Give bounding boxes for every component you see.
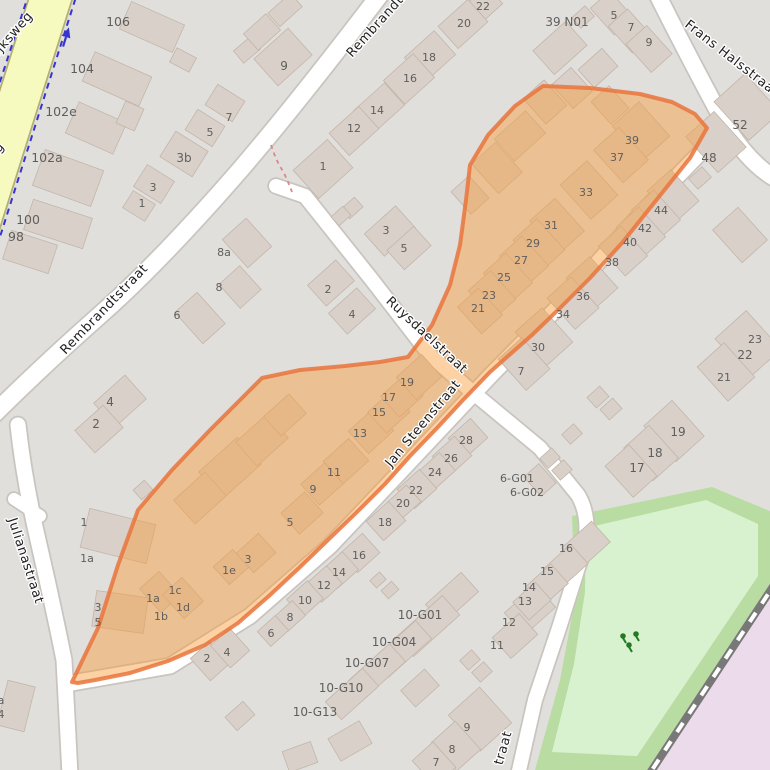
house-number: 2 (92, 417, 100, 431)
house-number: 27 (514, 254, 528, 267)
house-number: 5 (401, 242, 408, 255)
house-number: 5 (611, 9, 618, 22)
house-number: 13 (518, 595, 532, 608)
house-number: 8a (217, 246, 231, 259)
house-number: 4 (349, 308, 356, 321)
house-number: 5 (287, 516, 294, 529)
house-number: 9 (310, 483, 317, 496)
house-number: 1e (222, 564, 236, 577)
house-number: 14 (370, 104, 384, 117)
house-number: 36 (576, 290, 590, 303)
house-number: 44 (654, 204, 668, 217)
house-number: 12 (317, 579, 331, 592)
house-number: 8 (449, 743, 456, 756)
house-number: 6 (174, 309, 181, 322)
house-number: 1 (81, 516, 88, 529)
house-number: 40 (623, 236, 637, 249)
house-number: 7 (518, 365, 525, 378)
house-number: 104 (70, 61, 94, 76)
house-number: 102e (45, 104, 77, 119)
house-number: 16 (352, 549, 366, 562)
house-number: 100 (16, 212, 40, 227)
house-number: 10-G04 (372, 635, 417, 649)
house-number: 18 (647, 446, 662, 460)
house-number: 13 (353, 427, 367, 440)
house-number: 48 (701, 151, 716, 165)
house-number: 4 (106, 395, 114, 409)
house-number: 28 (459, 434, 473, 447)
house-number: 11 (327, 466, 341, 479)
house-number: 17 (382, 391, 396, 404)
house-number: 3b (176, 151, 191, 165)
house-number: 102a (31, 150, 63, 165)
house-number: 1b (154, 610, 168, 623)
house-number: 9 (280, 59, 288, 73)
house-number: 9 (464, 721, 471, 734)
house-number: 20 (457, 17, 471, 30)
house-number: 42 (638, 222, 652, 235)
house-number: 3 (150, 181, 157, 194)
house-number: 10-G13 (293, 705, 338, 719)
house-number: 39 N01 (545, 15, 588, 29)
house-number: 3 (95, 601, 102, 614)
house-number: 26 (444, 452, 458, 465)
house-number: 25 (497, 271, 511, 284)
house-number: 14 (332, 566, 346, 579)
house-number: 7 (433, 756, 440, 769)
house-number: 4 (0, 708, 5, 721)
house-number: 1c (168, 584, 181, 597)
house-number: 22 (409, 484, 423, 497)
house-number: 19 (670, 425, 685, 439)
house-number: 22 (737, 348, 752, 362)
house-number: 10-G10 (319, 681, 364, 695)
house-number: 1a (80, 552, 94, 565)
house-number: 106 (106, 14, 130, 29)
house-number: 4 (224, 646, 231, 659)
house-number: 1a (146, 592, 160, 605)
house-number: 16 (403, 72, 417, 85)
house-number: 8 (216, 281, 223, 294)
house-number: 23 (748, 333, 762, 346)
house-number: 52 (732, 118, 747, 132)
house-number: 6-G01 (500, 472, 534, 485)
house-number: 3 (245, 553, 252, 566)
house-number: 34 (556, 308, 570, 321)
house-number: 17 (629, 461, 644, 475)
house-number: 6 (268, 627, 275, 640)
house-number: 5 (95, 616, 102, 629)
house-number: 31 (544, 219, 558, 232)
house-number: 98 (8, 229, 24, 244)
house-number: 5 (207, 126, 214, 139)
house-number: 30 (531, 341, 545, 354)
house-number: 8 (287, 611, 294, 624)
house-number: 10-G07 (345, 656, 390, 670)
house-number: 11 (490, 639, 504, 652)
house-number: a (0, 694, 4, 707)
house-number: 29 (526, 237, 540, 250)
house-number: 7 (628, 21, 635, 34)
house-number: 1d (176, 601, 190, 614)
house-number: 10 (298, 594, 312, 607)
house-number: 10-G01 (398, 608, 443, 622)
map-canvas[interactable]: 106104102e102a10098753b31922201816141213… (0, 0, 770, 770)
house-number: 21 (717, 371, 731, 384)
house-number: 12 (347, 122, 361, 135)
house-number: 15 (372, 406, 386, 419)
house-number: 18 (378, 516, 392, 529)
house-number: 20 (396, 497, 410, 510)
house-number: 1 (139, 197, 146, 210)
house-number: 16 (559, 542, 573, 555)
house-number: 6-G02 (510, 486, 544, 499)
house-number: 1 (320, 160, 327, 173)
house-number: 33 (579, 186, 593, 199)
house-number: 21 (471, 302, 485, 315)
house-number: 37 (610, 151, 624, 164)
house-number: 3 (383, 224, 390, 237)
house-number: 23 (482, 289, 496, 302)
map-container: 106104102e102a10098753b31922201816141213… (0, 0, 770, 770)
house-number: 12 (502, 616, 516, 629)
house-number: 15 (540, 565, 554, 578)
house-number: 18 (422, 51, 436, 64)
house-number: 2 (325, 283, 332, 296)
house-number: 2 (204, 652, 211, 665)
house-number: 19 (400, 376, 414, 389)
house-number: 22 (476, 0, 490, 13)
house-number: 9 (646, 36, 653, 49)
house-number: 38 (605, 256, 619, 269)
house-number: 14 (522, 581, 536, 594)
house-number: 24 (428, 466, 442, 479)
house-number: 39 (625, 134, 639, 147)
house-number: 7 (226, 111, 233, 124)
